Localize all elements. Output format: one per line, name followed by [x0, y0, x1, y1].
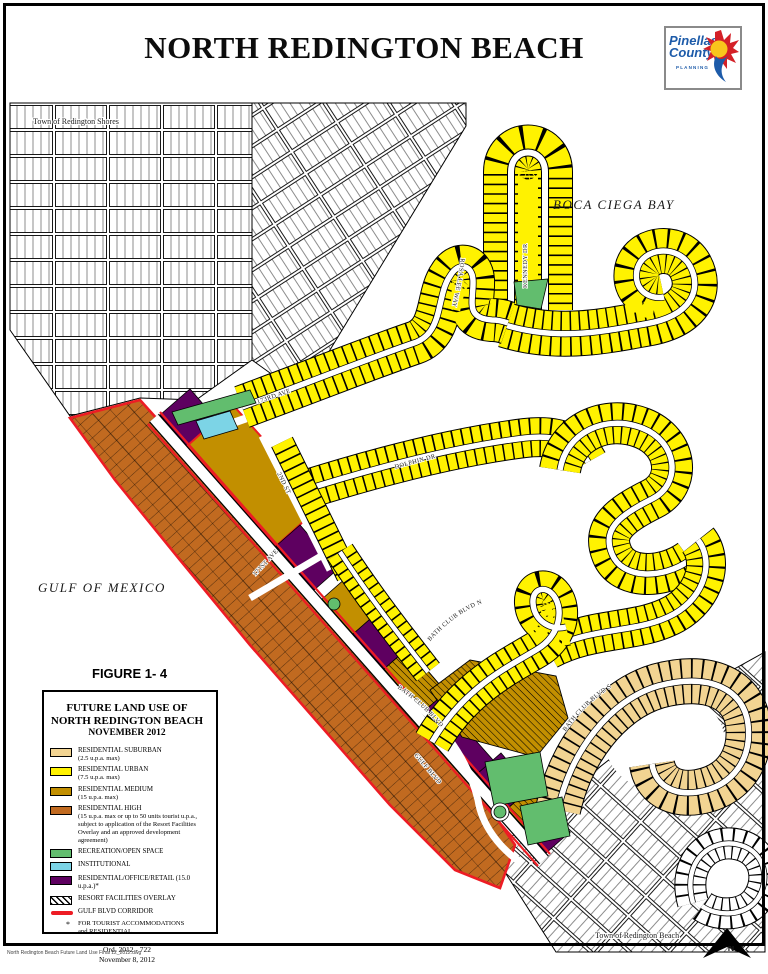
kennedy-dr-label: KENNEDY DR — [522, 243, 529, 288]
legend-item: RECREATION/OPEN SPACE — [44, 848, 210, 858]
suburban-swatch — [50, 748, 72, 757]
legend-title-line1: FUTURE LAND USE OF — [44, 702, 210, 715]
legend-item: RESIDENTIAL URBAN(7.5 u.p.a. max) — [44, 766, 210, 782]
legend-item: RESIDENTIAL HIGH(15 u.p.a. max or up to … — [44, 805, 210, 844]
legend-items: RESIDENTIAL SUBURBAN(2.5 u.p.a. max) RES… — [44, 747, 210, 936]
pinellas-county-logo: Pinellas County PLANNING — [664, 26, 742, 90]
corridor-asterisk: * — [66, 921, 70, 936]
legend-item: RESIDENTIAL SUBURBAN(2.5 u.p.a. max) — [44, 747, 210, 763]
logo-sunburst-icon — [703, 30, 739, 86]
institutional-swatch — [50, 862, 72, 871]
resort-overlay-swatch — [50, 896, 72, 905]
land-use-map-page: { "page": { "title": "NORTH REDINGTON BE… — [0, 0, 768, 974]
svg-text:KENNEDY DR: KENNEDY DR — [522, 243, 529, 288]
page-title: NORTH REDINGTON BEACH — [0, 30, 768, 66]
high-swatch — [50, 806, 72, 815]
office-retail-swatch — [50, 876, 72, 885]
boca-ciega-bay-label: BOCA CIEGA BAY — [553, 197, 675, 212]
legend-box: FUTURE LAND USE OF NORTH REDINGTON BEACH… — [42, 690, 218, 934]
north-arrow-n: N — [728, 943, 735, 953]
recreation-swatch — [50, 849, 72, 858]
ordinance-date: November 8, 2012 — [44, 955, 210, 965]
figure-label: FIGURE 1- 4 — [92, 666, 167, 681]
legend-item-continuation: * FOR TOURIST ACCOMMODATIONS and RESIDEN… — [44, 920, 210, 936]
legend-title-line3: NOVEMBER 2012 — [44, 727, 210, 740]
corridor-line-swatch — [51, 911, 73, 915]
file-note: North Redington Beach Future Land Use Fi… — [7, 950, 141, 956]
legend-item: INSTITUTIONAL — [44, 861, 210, 871]
legend-title-line2: NORTH REDINGTON BEACH — [44, 715, 210, 728]
urban-swatch — [50, 767, 72, 776]
legend-item: RESIDENTIAL/OFFICE/RETAIL (15.0 u.p.a.)* — [44, 875, 210, 891]
legend-item: RESORT FACILITIES OVERLAY — [44, 895, 210, 905]
town-of-redington-beach-label: Town of Redington Beach — [595, 931, 679, 940]
town-of-redington-shores-label: Town of Redington Shores — [33, 117, 119, 126]
medium-swatch — [50, 787, 72, 796]
legend-item: RESIDENTIAL MEDIUM(15 u.p.a. max) — [44, 786, 210, 802]
legend-item: GULF BLVD CORRIDOR — [44, 908, 210, 916]
gulf-of-mexico-label: GULF OF MEXICO — [38, 580, 166, 595]
